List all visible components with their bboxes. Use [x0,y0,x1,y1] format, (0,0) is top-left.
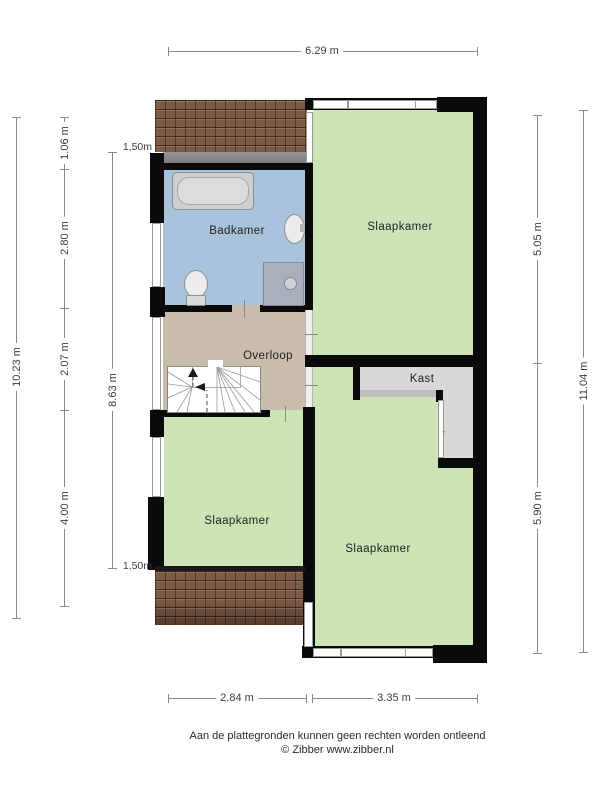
knee-wall-bottom-label: 1,50m [112,560,152,572]
dim-left-seg4-label: 4.00 m [59,487,71,529]
dim-tick [60,606,69,607]
floorplan-page: ↑ Badkamer Slaap [0,0,600,800]
toilet-tank [186,295,206,306]
door-leftroom-leaf [285,406,286,422]
dim-tick [533,653,542,654]
window-bottom-mullion [340,649,342,656]
footer: Aan de plattegronden kunnen geen rechten… [150,729,525,758]
wall-kast-left [353,367,360,400]
dormer-strip [163,152,307,163]
dim-tick [12,117,21,118]
window-bottom [313,648,433,657]
wall-leftroom-bottom-edge [155,566,305,571]
slaapkamer-left-floor [164,415,305,566]
roof-bottom [155,571,305,625]
dim-left-inner-label: 8.63 m [107,369,119,411]
dim-tick [477,47,478,56]
dim-tick [60,308,69,309]
dim-left-seg3-label: 2.07 m [59,338,71,380]
footer-disclaimer: Aan de plattegronden kunnen geen rechten… [150,729,525,743]
wall-kast-low [360,390,438,397]
wall-badkamer-top [156,163,308,170]
window-top-mullion-2 [415,101,416,108]
wall-center-upper [305,163,313,310]
kast-label: Kast [410,373,435,385]
dim-bottom-left-label: 2.84 m [216,692,258,704]
overloop-label: Overloop [243,350,293,362]
dim-tick [306,694,307,703]
wall-left-3 [150,410,164,437]
dim-tick [60,410,69,411]
door-slaapkamer-top-tick [305,334,318,335]
badkamer-label: Badkamer [209,225,265,237]
wall-left-2 [150,287,165,317]
door-badkamer-leaf [244,300,245,318]
door-badkamer-opening [232,305,260,312]
dim-tick [12,618,21,619]
dim-right-outer-label: 11.04 m [578,358,590,405]
wall-kast-bottom [438,458,473,468]
dim-top-label: 6.29 m [301,45,343,57]
window-badkamer-left [152,223,161,287]
dim-right-upper-label: 5.05 m [532,218,544,260]
kast-door-arrow-icon: ↑ [441,428,446,439]
dim-line-right-inner [537,115,538,653]
dim-bottom-right-label: 3.35 m [373,692,415,704]
kast-floor-right [443,392,473,460]
dim-tick [533,115,542,116]
shower-drain-icon [284,277,297,290]
window-top [313,100,437,109]
window-bottom-mullion-2 [405,649,406,656]
window-leftroom-left [152,437,161,497]
knee-wall-top-label: 1,50m [112,141,152,153]
door-slaapkamer-bottom-opening [305,367,313,407]
dim-tick [579,110,588,111]
dim-left-seg1-label: 1.06 m [59,122,71,164]
door-slaapkamer-top-opening [305,310,313,355]
dim-tick [168,47,169,56]
slaapkamer-bottom-label: Slaapkamer [345,543,410,555]
staircase-icon [167,366,261,413]
door-leftroom-opening [270,410,303,417]
dim-tick [477,694,478,703]
stair-nosing-marker [208,360,223,367]
window-overloop-left [152,317,161,410]
wall-bottom-corner [433,645,487,663]
footer-copyright: © Zibber www.zibber.nl [150,743,525,757]
sink-tap-icon [300,224,305,232]
dim-left-outer-label: 10.23 m [11,343,23,391]
bathtub-icon [172,172,254,210]
window-west-lower [304,602,313,647]
dim-tick [533,363,542,364]
dim-line-left-inner [112,152,113,568]
door-slaapkamer-bottom-tick [305,385,318,386]
slaapkamer-top-label: Slaapkamer [367,221,432,233]
window-top-mullion [347,101,349,108]
dim-left-seg2-label: 2.80 m [59,217,71,259]
wall-right [473,98,487,663]
slaapkamer-left-label: Slaapkamer [204,515,269,527]
bathtub-inner [177,177,249,205]
dim-tick [60,169,69,170]
wall-mid-horizontal [305,355,473,367]
dim-tick [579,652,588,653]
roof-top [155,100,307,152]
dim-tick [312,694,313,703]
window-west-upper [306,112,313,163]
dim-right-lower-label: 5.90 m [532,487,544,529]
dim-tick [60,117,69,118]
dim-tick [168,694,169,703]
toilet-icon [184,270,208,298]
